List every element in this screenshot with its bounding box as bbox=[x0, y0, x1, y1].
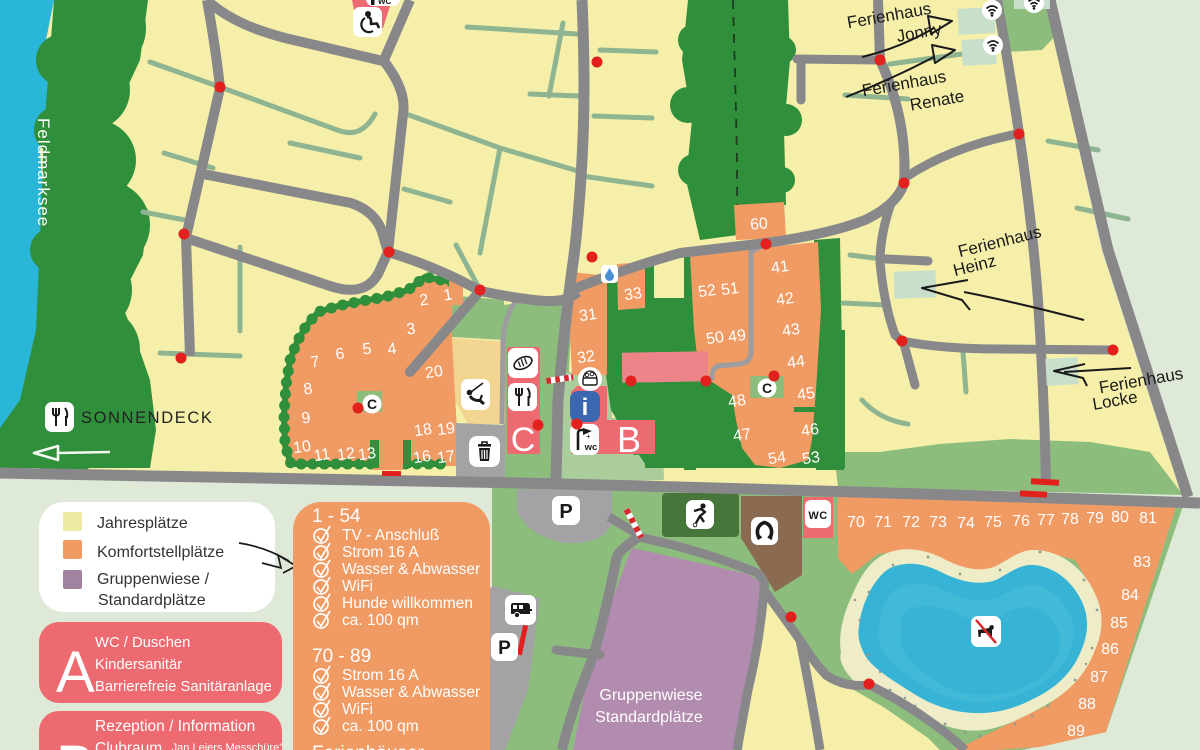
svg-text:74: 74 bbox=[957, 515, 975, 532]
svg-text:Gruppenwiese: Gruppenwiese bbox=[599, 687, 702, 704]
svg-text:72: 72 bbox=[902, 514, 920, 531]
svg-text:1 - 54: 1 - 54 bbox=[312, 506, 361, 527]
svg-text:78: 78 bbox=[1061, 511, 1079, 528]
svg-text:B: B bbox=[617, 419, 641, 460]
svg-text:79: 79 bbox=[1086, 510, 1104, 527]
svg-text:11: 11 bbox=[313, 446, 332, 465]
svg-text:42: 42 bbox=[775, 290, 795, 309]
svg-text:+: + bbox=[586, 432, 591, 441]
svg-text:80: 80 bbox=[1111, 509, 1129, 526]
svg-text:WiFi: WiFi bbox=[342, 701, 373, 718]
svg-text:wc: wc bbox=[584, 442, 598, 453]
svg-text:84: 84 bbox=[1121, 587, 1139, 604]
svg-text:„Jan Leiers Messchüre": „Jan Leiers Messchüre" bbox=[168, 742, 283, 750]
svg-text:Ferienhäuser: Ferienhäuser bbox=[312, 743, 425, 750]
svg-text:Jahresplätze: Jahresplätze bbox=[97, 515, 188, 532]
svg-text:SONNENDECK: SONNENDECK bbox=[81, 409, 213, 427]
svg-text:49: 49 bbox=[727, 327, 747, 346]
svg-text:WC / Duschen: WC / Duschen bbox=[95, 635, 190, 651]
svg-text:70 - 89: 70 - 89 bbox=[312, 646, 371, 667]
svg-text:70: 70 bbox=[847, 514, 865, 531]
svg-text:52: 52 bbox=[697, 282, 717, 301]
svg-text:71: 71 bbox=[874, 514, 892, 531]
svg-text:16: 16 bbox=[412, 448, 432, 467]
svg-text:Rezeption / Information: Rezeption / Information bbox=[95, 718, 255, 735]
svg-text:ca. 100 qm: ca. 100 qm bbox=[342, 612, 419, 629]
svg-text:51: 51 bbox=[720, 280, 740, 299]
svg-text:75: 75 bbox=[984, 514, 1002, 531]
svg-text:Standardplätze: Standardplätze bbox=[595, 709, 703, 726]
svg-text:48: 48 bbox=[727, 392, 747, 411]
svg-text:88: 88 bbox=[1078, 696, 1096, 713]
svg-text:Wasser & Abwasser: Wasser & Abwasser bbox=[342, 561, 480, 578]
svg-text:Kindersanitär: Kindersanitär bbox=[95, 657, 182, 673]
svg-text:Feldmarksee: Feldmarksee bbox=[34, 118, 53, 227]
svg-text:85: 85 bbox=[1110, 615, 1128, 632]
svg-text:WC: WC bbox=[378, 0, 392, 6]
svg-text:89: 89 bbox=[1067, 723, 1085, 740]
svg-text:81: 81 bbox=[1139, 510, 1157, 527]
svg-text:17: 17 bbox=[436, 448, 456, 467]
svg-text:Hunde willkommen: Hunde willkommen bbox=[342, 595, 473, 612]
svg-text:P: P bbox=[498, 638, 511, 659]
svg-text:Standardplätze: Standardplätze bbox=[98, 592, 206, 609]
svg-text:47: 47 bbox=[732, 426, 752, 445]
svg-text:50: 50 bbox=[705, 329, 725, 348]
svg-text:44: 44 bbox=[786, 353, 806, 372]
svg-text:76: 76 bbox=[1012, 513, 1030, 530]
svg-text:46: 46 bbox=[800, 421, 820, 440]
svg-text:18: 18 bbox=[413, 421, 433, 440]
svg-text:C: C bbox=[762, 380, 772, 396]
svg-text:A: A bbox=[56, 640, 95, 705]
svg-text:13: 13 bbox=[357, 445, 377, 464]
svg-text:73: 73 bbox=[929, 514, 947, 531]
svg-text:C: C bbox=[511, 421, 536, 459]
svg-text:20: 20 bbox=[424, 363, 444, 382]
svg-text:Wasser & Abwasser: Wasser & Abwasser bbox=[342, 684, 480, 701]
svg-text:P: P bbox=[559, 501, 572, 523]
svg-text:Barrierefreie Sanitäranlage: Barrierefreie Sanitäranlage bbox=[95, 679, 272, 695]
svg-text:Gruppenwiese /: Gruppenwiese / bbox=[97, 571, 210, 588]
svg-text:WC: WC bbox=[808, 510, 827, 522]
svg-text:10: 10 bbox=[292, 438, 312, 457]
svg-text:83: 83 bbox=[1133, 554, 1151, 571]
svg-text:60: 60 bbox=[749, 215, 768, 233]
svg-text:86: 86 bbox=[1101, 641, 1119, 658]
svg-text:77: 77 bbox=[1037, 512, 1055, 529]
svg-text:87: 87 bbox=[1090, 669, 1108, 686]
svg-text:12: 12 bbox=[336, 445, 356, 464]
svg-text:Strom 16 A: Strom 16 A bbox=[342, 544, 419, 561]
svg-text:19: 19 bbox=[436, 420, 456, 439]
svg-text:TV - Anschluß: TV - Anschluß bbox=[342, 527, 439, 544]
svg-text:41: 41 bbox=[770, 258, 790, 277]
svg-text:B: B bbox=[56, 734, 95, 750]
svg-text:i: i bbox=[582, 394, 589, 421]
svg-text:Clubraum: Clubraum bbox=[95, 740, 162, 750]
svg-text:45: 45 bbox=[796, 385, 816, 404]
svg-text:32: 32 bbox=[576, 348, 596, 367]
svg-text:33: 33 bbox=[623, 285, 643, 304]
svg-text:C: C bbox=[367, 396, 377, 412]
svg-text:WiFi: WiFi bbox=[342, 578, 373, 595]
svg-text:53: 53 bbox=[801, 449, 821, 468]
svg-text:54: 54 bbox=[767, 449, 787, 468]
svg-text:Komfortstellplätze: Komfortstellplätze bbox=[97, 544, 224, 561]
svg-text:Strom 16 A: Strom 16 A bbox=[342, 667, 419, 684]
svg-text:31: 31 bbox=[578, 306, 598, 325]
svg-text:43: 43 bbox=[781, 321, 801, 340]
svg-text:ca. 100 qm: ca. 100 qm bbox=[342, 718, 419, 735]
